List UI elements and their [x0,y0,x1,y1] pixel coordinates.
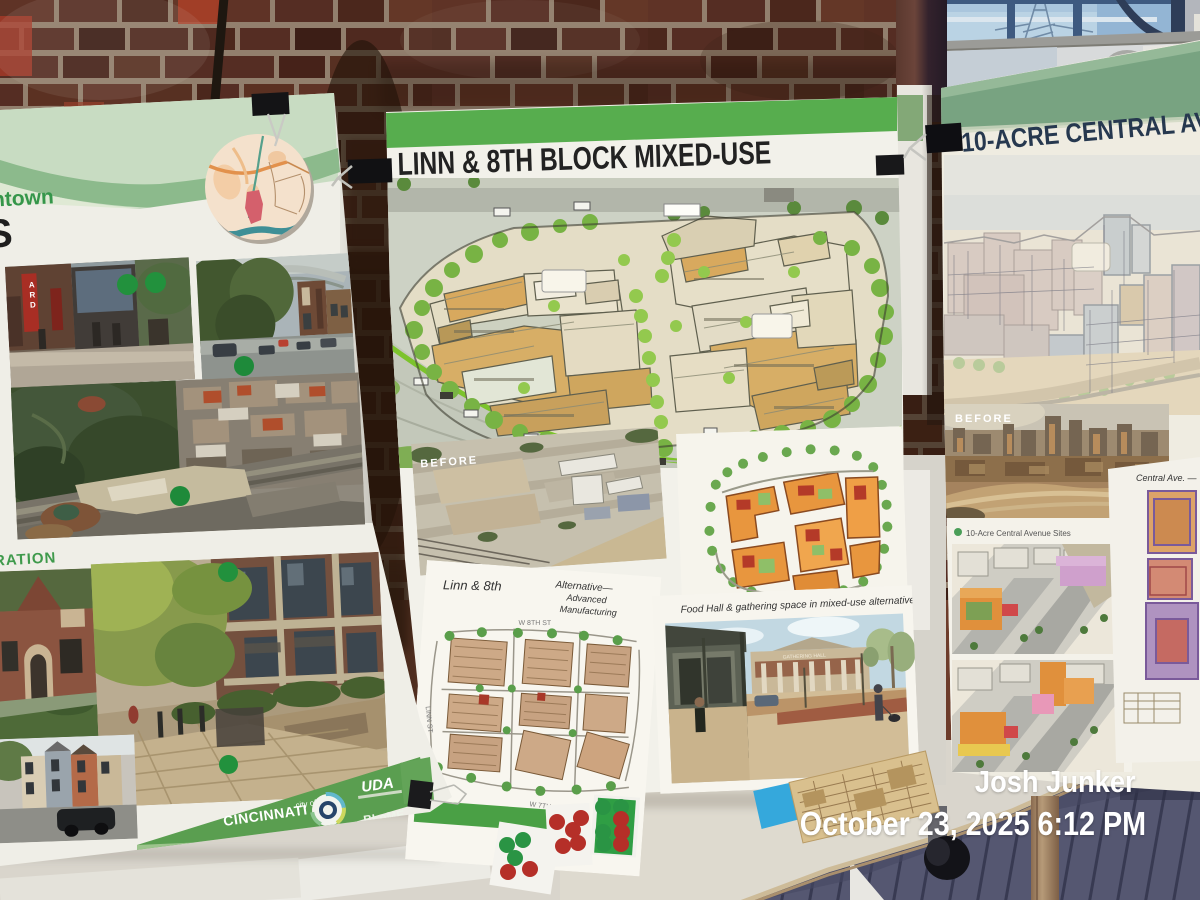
svg-text:A: A [29,280,35,289]
svg-text:Linn & 8th: Linn & 8th [443,577,502,593]
svg-text:W 8TH ST: W 8TH ST [518,620,551,627]
svg-text:10-Acre Central Avenue Sites: 10-Acre Central Avenue Sites [966,529,1071,538]
svg-text:R: R [29,290,35,299]
svg-text:Central Ave. —: Central Ave. — [1136,473,1198,483]
svg-text:BEFORE: BEFORE [955,413,1013,425]
svg-text:D: D [30,300,36,309]
